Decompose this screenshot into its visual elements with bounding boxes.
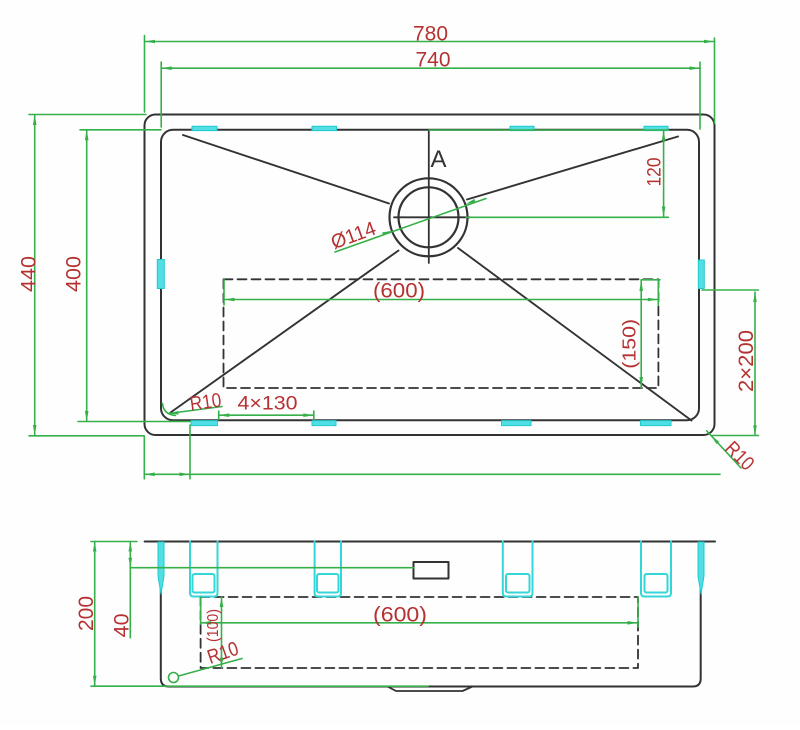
svg-text:R10: R10 (189, 389, 223, 415)
svg-text:(600): (600) (373, 604, 427, 627)
svg-text:(100): (100) (205, 609, 222, 642)
svg-text:40: 40 (110, 613, 133, 637)
svg-text:120: 120 (644, 158, 665, 187)
svg-text:A: A (430, 146, 446, 173)
svg-text:440: 440 (18, 256, 41, 292)
svg-text:200: 200 (75, 596, 98, 631)
svg-text:(150): (150) (620, 319, 640, 369)
svg-text:(600): (600) (373, 280, 425, 303)
svg-text:780: 780 (413, 23, 448, 46)
svg-text:400: 400 (62, 256, 85, 292)
svg-text:2×200: 2×200 (735, 330, 758, 392)
svg-text:R10: R10 (720, 437, 758, 475)
svg-text:740: 740 (416, 48, 451, 71)
svg-text:4×130: 4×130 (238, 394, 298, 415)
svg-text:Ø114: Ø114 (328, 218, 379, 254)
